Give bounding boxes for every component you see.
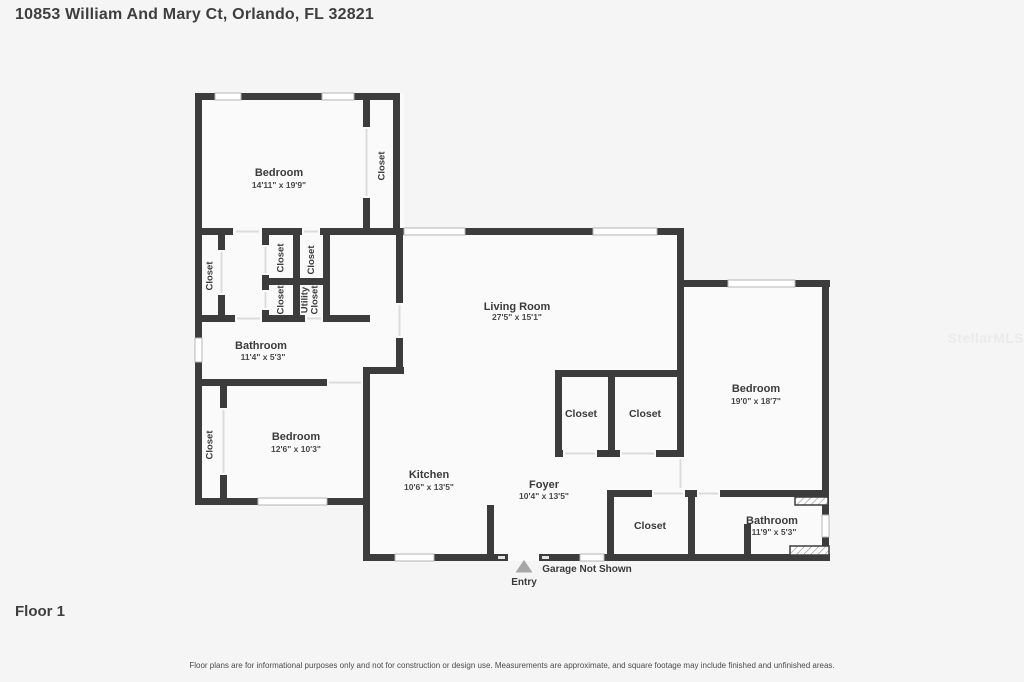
room-label-bathroom-1: Bathroom [235, 340, 287, 352]
room-dims-foyer: 10'4" x 13'5" [519, 491, 569, 501]
wall-segment [552, 554, 580, 561]
wall-segment [323, 315, 370, 322]
wall-segment [614, 490, 652, 497]
wall-segment [262, 275, 269, 290]
window [593, 228, 657, 235]
wall-segment [262, 310, 269, 322]
room-dims-living-room: 27'5" x 15'1" [492, 312, 542, 322]
floor-plan: Bedroom 14'11" x 19'9" Bathroom 11'4" x … [0, 0, 1024, 682]
wall-segment [555, 370, 562, 457]
wall-segment [396, 235, 403, 303]
wall-segment [320, 228, 404, 235]
wall-segment [720, 490, 828, 497]
wall-segment [677, 228, 684, 457]
window [258, 498, 327, 505]
wall-segment [323, 228, 330, 322]
window [580, 554, 604, 561]
room-label-bathroom-2: Bathroom [746, 515, 798, 527]
closet-label-foyer: Closet [634, 520, 667, 532]
wall-segment [363, 198, 370, 235]
wall-segment [262, 228, 269, 245]
room-dims-kitchen: 10'6" x 13'5" [404, 482, 454, 492]
window [322, 93, 354, 100]
entry-label: Entry [511, 577, 537, 588]
room-label-foyer: Foyer [529, 479, 560, 491]
wall-segment [218, 295, 225, 322]
window [404, 228, 465, 235]
wall-segment [677, 280, 728, 287]
wall-segment [195, 498, 258, 505]
window [728, 280, 795, 287]
window [195, 338, 202, 362]
closet-label-living-right: Closet [629, 408, 662, 420]
wall-segment [396, 338, 403, 374]
room-dims-bedroom-2: 12'6" x 10'3" [271, 444, 321, 454]
room-dims-bedroom-1: 14'11" x 19'9" [252, 180, 306, 190]
wall-segment [220, 386, 227, 408]
wall-segment [822, 280, 829, 515]
wall-segment [363, 374, 370, 561]
wall-segment [241, 93, 322, 100]
wall-segment [393, 93, 400, 235]
window [822, 515, 829, 537]
floor-label: Floor 1 [15, 603, 65, 620]
room-dims-bedroom-3: 19'0" x 18'7" [731, 396, 781, 406]
room-dims-bathroom-2: 11'9" x 5'3" [752, 527, 797, 537]
fixture-hatch [795, 497, 828, 505]
closet-label-living-left: Closet [565, 408, 598, 420]
closet-label-hall: Closet [205, 261, 216, 291]
wall-segment [195, 379, 327, 386]
utility-closet-label-line2: Closet [310, 285, 321, 315]
closet-label-cluster-tl: Closet [276, 243, 287, 273]
room-label-bedroom-3: Bedroom [732, 383, 781, 395]
closet-label-bedroom2: Closet [205, 430, 216, 460]
window [215, 93, 241, 100]
garage-note: Garage Not Shown [542, 564, 631, 575]
window [395, 554, 434, 561]
watermark: StellarMLS [948, 330, 1024, 346]
wall-segment [195, 362, 202, 505]
closet-label-cluster-tr: Closet [306, 245, 317, 275]
disclaimer: Floor plans are for informational purpos… [0, 661, 1024, 670]
wall-segment [607, 490, 614, 561]
wall-segment [220, 475, 227, 498]
wall-segment [744, 524, 751, 561]
room-dims-bathroom-1: 11'4" x 5'3" [241, 352, 286, 362]
wall-segment [465, 228, 593, 235]
room-label-bedroom-1: Bedroom [255, 167, 304, 179]
closet-label-cluster-bl: Closet [276, 285, 287, 315]
fixture-hatch [790, 546, 829, 555]
room-label-bedroom-2: Bedroom [272, 431, 321, 443]
wall-segment [688, 490, 695, 561]
entry-arrow-icon [516, 560, 533, 573]
floor-plan-page: { "header": { "title": "10853 William An… [0, 0, 1024, 682]
wall-segment [363, 93, 370, 127]
wall-segment [218, 235, 225, 250]
door-jamb-inner [542, 556, 549, 559]
wall-segment [555, 370, 684, 377]
wall-segment [608, 370, 615, 457]
wall-segment [195, 93, 202, 338]
closet-label-bedroom1: Closet [377, 151, 388, 181]
wall-segment [487, 505, 494, 561]
door-jamb-inner [498, 556, 505, 559]
room-label-kitchen: Kitchen [409, 469, 450, 481]
